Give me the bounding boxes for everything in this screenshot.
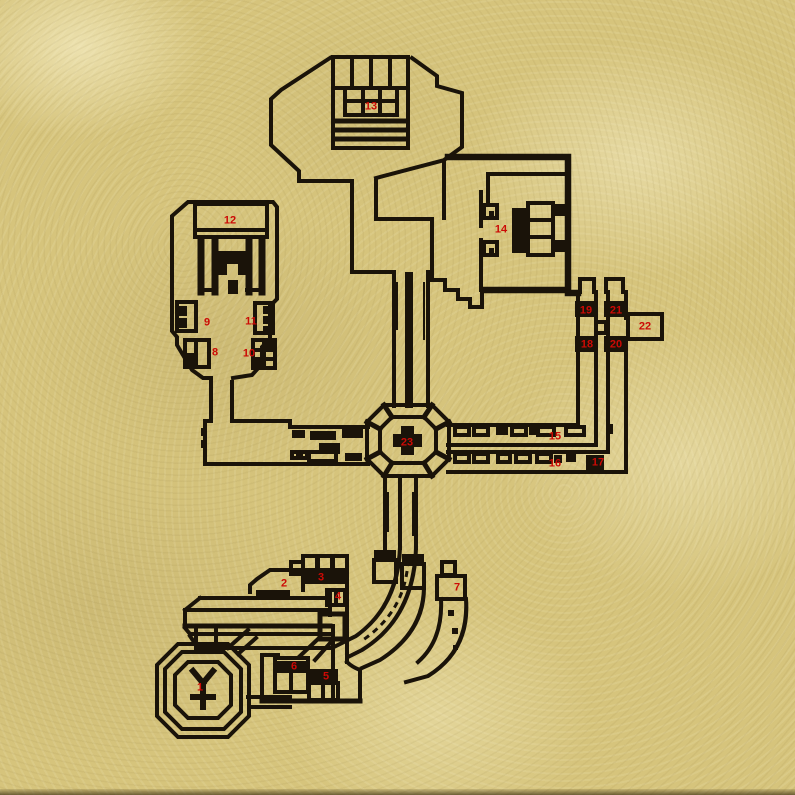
map-marker-15: 15 [549, 432, 561, 443]
map-marker-21: 21 [610, 306, 622, 317]
map-marker-6: 6 [291, 662, 297, 673]
map-marker-8: 8 [212, 348, 218, 359]
map-marker-14: 14 [495, 225, 507, 236]
map-marker-16: 16 [549, 459, 561, 470]
map-marker-4: 4 [335, 592, 341, 603]
map-marker-9: 9 [204, 318, 210, 329]
map-marker-12: 12 [224, 216, 236, 227]
map-marker-23: 23 [401, 438, 413, 449]
map-marker-5: 5 [323, 672, 329, 683]
map-marker-2: 2 [281, 579, 287, 590]
map-marker-20: 20 [610, 340, 622, 351]
map-marker-11: 11 [245, 317, 257, 328]
map-markers-layer: 1234567891011121314151617181920212223 [0, 0, 795, 795]
map-marker-17: 17 [592, 458, 604, 469]
map-marker-10: 10 [243, 349, 255, 360]
map-marker-22: 22 [639, 322, 651, 333]
map-marker-7: 7 [454, 583, 460, 594]
map-marker-18: 18 [581, 340, 593, 351]
map-marker-19: 19 [580, 306, 592, 317]
map-marker-13: 13 [365, 102, 377, 113]
map-marker-1: 1 [197, 683, 203, 694]
parchment-background: 1234567891011121314151617181920212223 [0, 0, 795, 795]
map-marker-3: 3 [318, 573, 324, 584]
